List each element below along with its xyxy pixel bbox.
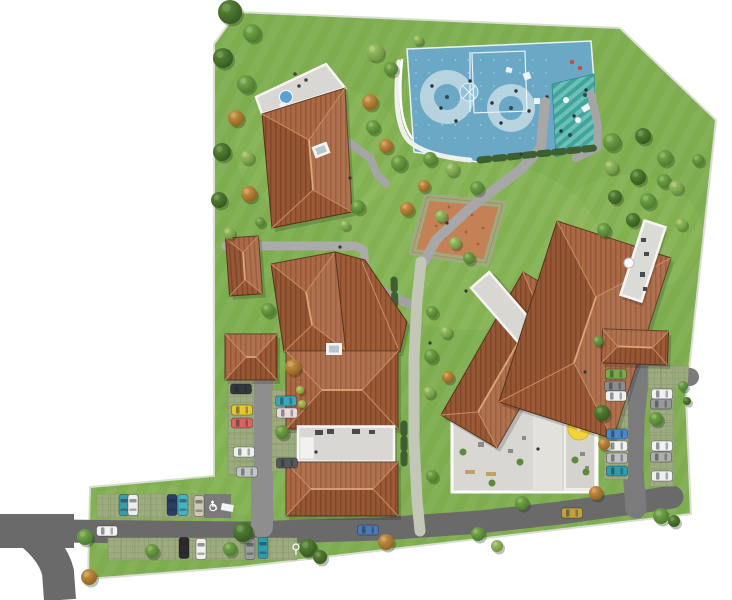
- car: [231, 384, 252, 394]
- stalls-west-upper-stall: [151, 494, 165, 518]
- car: [178, 495, 188, 516]
- car: [179, 538, 189, 559]
- site-plan-canvas: [0, 0, 732, 600]
- stalls-west-lower-stall: [284, 538, 298, 560]
- building-a: [256, 64, 355, 232]
- stalls-central-left-stall: [228, 434, 254, 448]
- car: [194, 496, 204, 517]
- site-plan: [0, 0, 732, 600]
- car: [607, 466, 628, 476]
- car: [652, 441, 673, 451]
- stalls-west-lower-stall: [108, 538, 122, 560]
- car: [119, 495, 129, 516]
- car: [237, 467, 258, 477]
- building-b2: [225, 334, 280, 384]
- stalls-west-lower-stall: [270, 538, 284, 560]
- stalls-west-lower-stall: [162, 538, 176, 560]
- stalls-west-upper-stall: [97, 494, 111, 518]
- building-b1: [226, 236, 266, 300]
- car: [607, 453, 628, 463]
- tree: [218, 0, 244, 27]
- car: [358, 525, 379, 535]
- car: [277, 458, 298, 468]
- stalls-west-upper-stall: [138, 494, 152, 518]
- car: [652, 389, 673, 399]
- car: [562, 508, 583, 518]
- car: [128, 495, 138, 516]
- car: [97, 526, 118, 536]
- stalls-central-right-stall: [272, 444, 298, 458]
- car: [276, 396, 297, 406]
- car: [277, 408, 298, 418]
- car: [232, 418, 253, 428]
- car: [234, 447, 255, 457]
- car: [606, 391, 627, 401]
- car: [196, 539, 206, 560]
- stalls-east-stub-stall: [648, 366, 662, 388]
- car: [606, 369, 627, 379]
- stalls-east-stub-stall: [662, 366, 676, 388]
- car: [232, 405, 253, 415]
- stalls-west-lower-stall: [122, 538, 136, 560]
- car: [167, 495, 177, 516]
- car: [607, 429, 628, 439]
- car: [652, 471, 673, 481]
- tree: [668, 515, 682, 530]
- sports-court: [407, 41, 599, 162]
- building-e: [601, 329, 671, 369]
- car: [258, 538, 268, 559]
- car: [651, 452, 672, 462]
- car: [605, 381, 626, 391]
- car: [651, 399, 672, 409]
- tree: [491, 540, 505, 555]
